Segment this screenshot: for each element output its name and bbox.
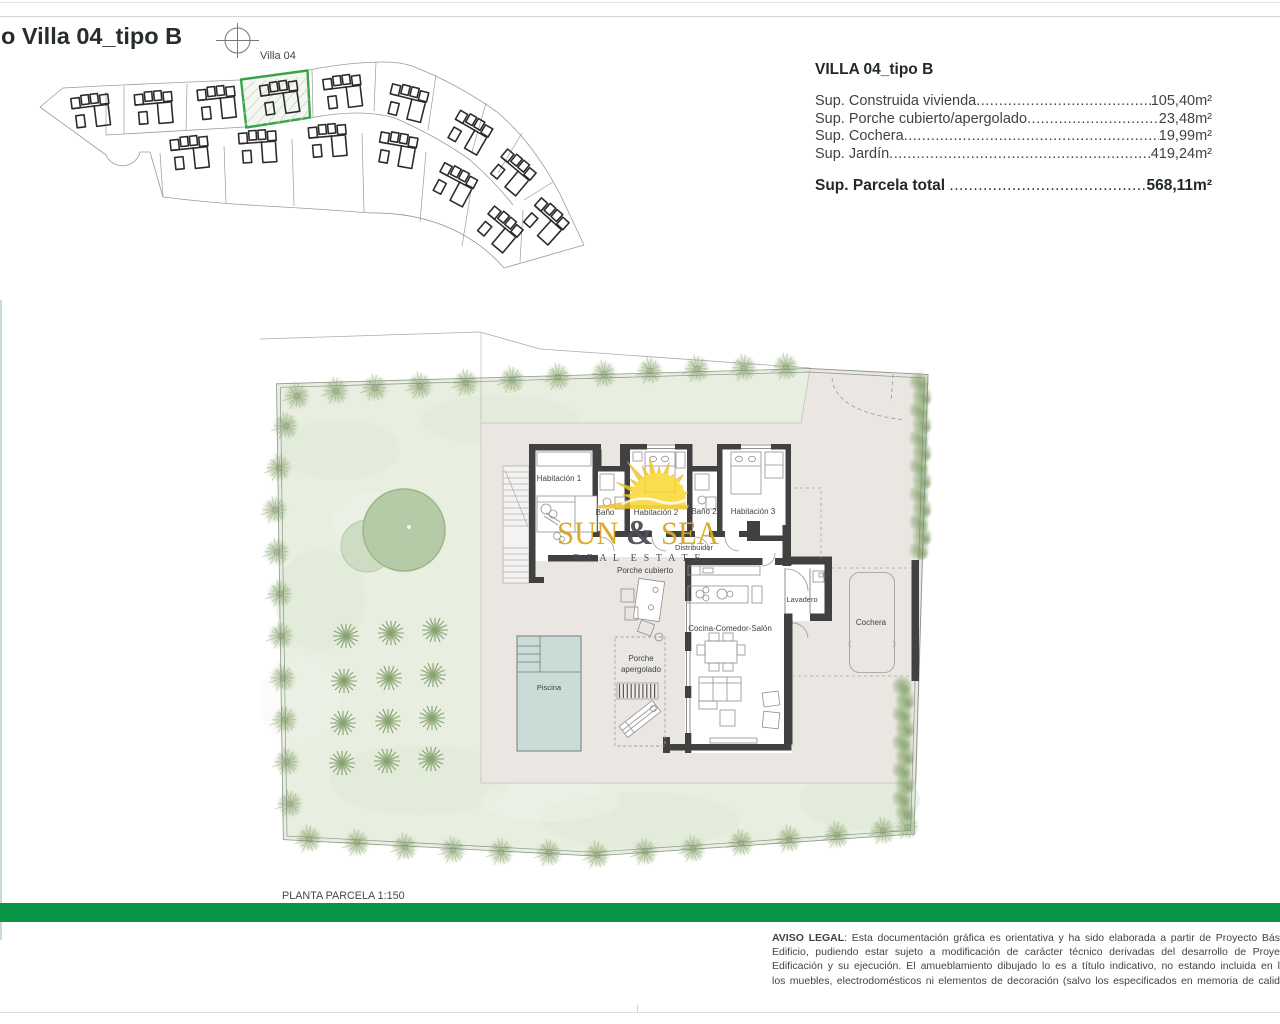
svg-text:Cochera: Cochera (856, 618, 887, 627)
svg-text:Cocina-Comedor-Salón: Cocina-Comedor-Salón (688, 624, 772, 633)
svg-text:SUN & SEA: SUN & SEA (557, 513, 719, 552)
svg-text:Habitación 1: Habitación 1 (537, 474, 582, 483)
svg-text:Porche: Porche (628, 654, 654, 663)
svg-text:Baño 2: Baño 2 (691, 507, 717, 516)
svg-text:Piscina: Piscina (537, 683, 562, 692)
svg-text:Lavadero: Lavadero (786, 595, 817, 604)
svg-text:R E A L E S T A T E: R E A L E S T A T E (573, 553, 702, 564)
svg-text:apergolado: apergolado (621, 665, 662, 674)
svg-text:Habitación 3: Habitación 3 (731, 507, 776, 516)
svg-text:Porche cubierto: Porche cubierto (617, 566, 674, 575)
